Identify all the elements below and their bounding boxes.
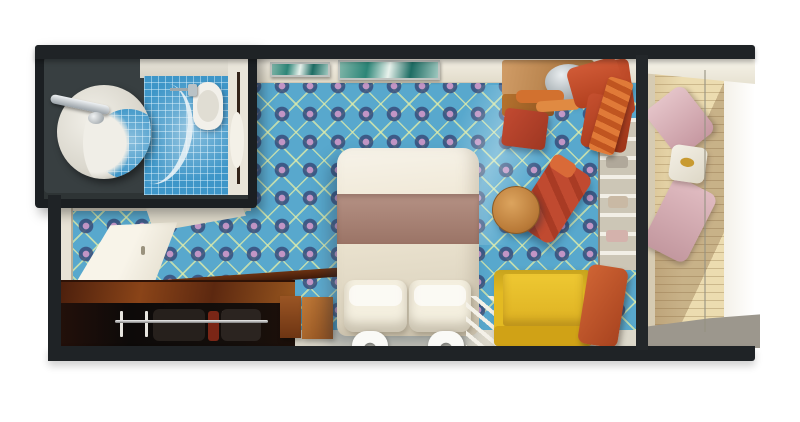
nightstand — [302, 297, 333, 339]
luggage-rack — [466, 296, 496, 350]
door-handle — [141, 246, 145, 255]
wall-art-small — [270, 62, 330, 77]
round-side-table — [492, 186, 540, 234]
clothes-rail — [115, 320, 268, 323]
bathroom — [35, 45, 257, 208]
shelf-item — [606, 230, 628, 242]
nightstand — [280, 296, 301, 338]
sofa-seat — [503, 274, 583, 326]
pillow — [409, 280, 471, 332]
bottom-wall — [48, 346, 755, 361]
wall-art-large — [338, 60, 440, 80]
stateroom-floor-plan — [0, 0, 800, 422]
desk-stool — [501, 107, 549, 150]
hanging-clothes — [153, 309, 205, 341]
balcony-railing — [704, 70, 706, 332]
shelf-item — [608, 196, 628, 208]
bed-runner — [337, 194, 479, 244]
bathroom-door-towel — [230, 112, 244, 168]
deck-table-item — [680, 157, 695, 168]
balcony-door-track — [648, 60, 655, 338]
pillow — [344, 280, 407, 332]
hanging-clothes — [208, 311, 219, 341]
red-armchair — [560, 62, 632, 164]
shower-arm — [170, 88, 190, 91]
shower-head — [188, 84, 197, 96]
toilet — [193, 82, 223, 130]
hanger — [145, 311, 148, 337]
glass-partition-wall — [636, 55, 648, 350]
pillow-top — [349, 285, 402, 306]
balcony-sunlit-edge — [724, 60, 755, 338]
toilet-seat — [197, 90, 219, 122]
pillow-top — [414, 285, 466, 306]
wardrobe — [58, 303, 295, 348]
hanger — [120, 311, 123, 337]
hanging-clothes — [221, 309, 261, 341]
faucet-spout — [88, 112, 104, 124]
deck-table — [668, 144, 709, 185]
left-wall — [48, 195, 61, 361]
